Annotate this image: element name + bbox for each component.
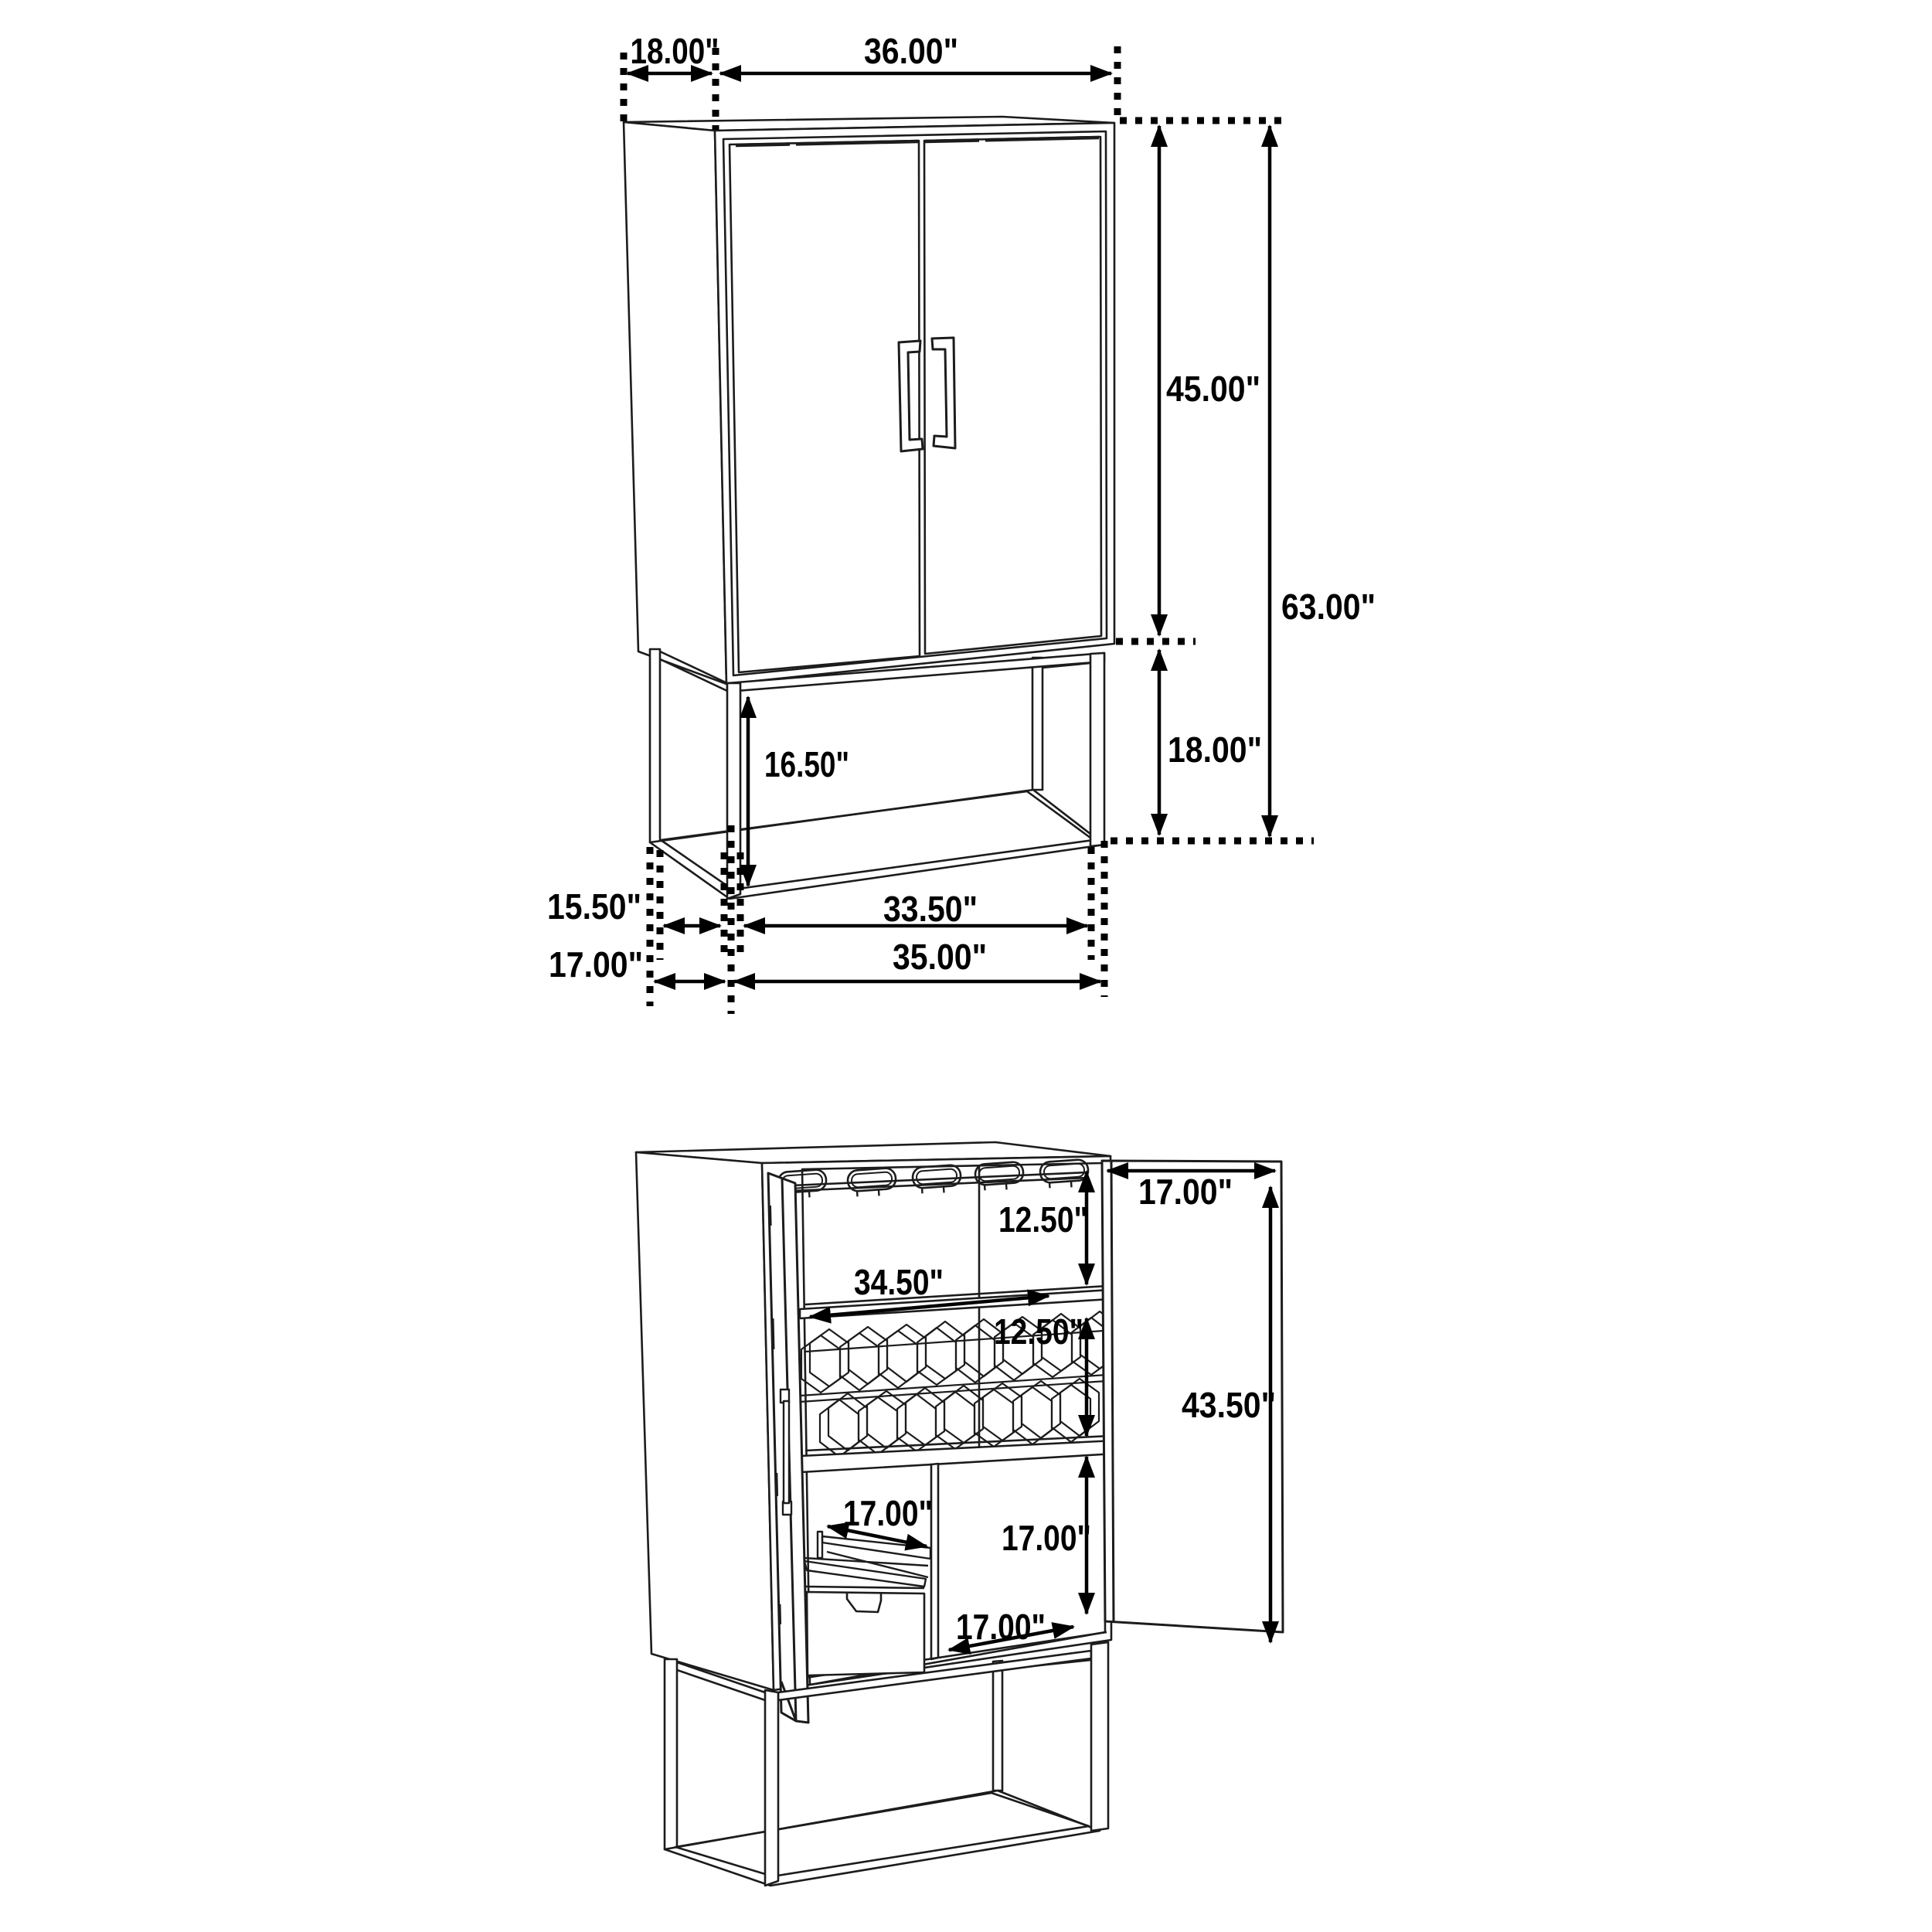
svg-text:12.50": 12.50" bbox=[998, 1199, 1088, 1240]
svg-text:12.50": 12.50" bbox=[994, 1311, 1083, 1352]
svg-text:17.00": 17.00" bbox=[843, 1493, 933, 1533]
svg-text:43.50": 43.50" bbox=[1182, 1385, 1276, 1425]
svg-text:16.50": 16.50" bbox=[764, 744, 849, 784]
svg-text:35.00": 35.00" bbox=[893, 937, 987, 977]
svg-text:34.50": 34.50" bbox=[854, 1262, 944, 1302]
svg-text:45.00": 45.00" bbox=[1166, 369, 1260, 409]
svg-text:18.00": 18.00" bbox=[1168, 730, 1262, 770]
svg-text:18.00": 18.00" bbox=[631, 31, 719, 71]
svg-text:15.50": 15.50" bbox=[547, 886, 641, 927]
svg-text:63.00": 63.00" bbox=[1281, 587, 1376, 627]
svg-text:17.00": 17.00" bbox=[1138, 1172, 1233, 1212]
svg-text:33.50": 33.50" bbox=[883, 889, 978, 929]
svg-text:17.00": 17.00" bbox=[549, 944, 643, 985]
svg-text:17.00": 17.00" bbox=[1002, 1518, 1091, 1558]
svg-text:17.00": 17.00" bbox=[956, 1607, 1046, 1647]
svg-text:36.00": 36.00" bbox=[864, 31, 958, 71]
